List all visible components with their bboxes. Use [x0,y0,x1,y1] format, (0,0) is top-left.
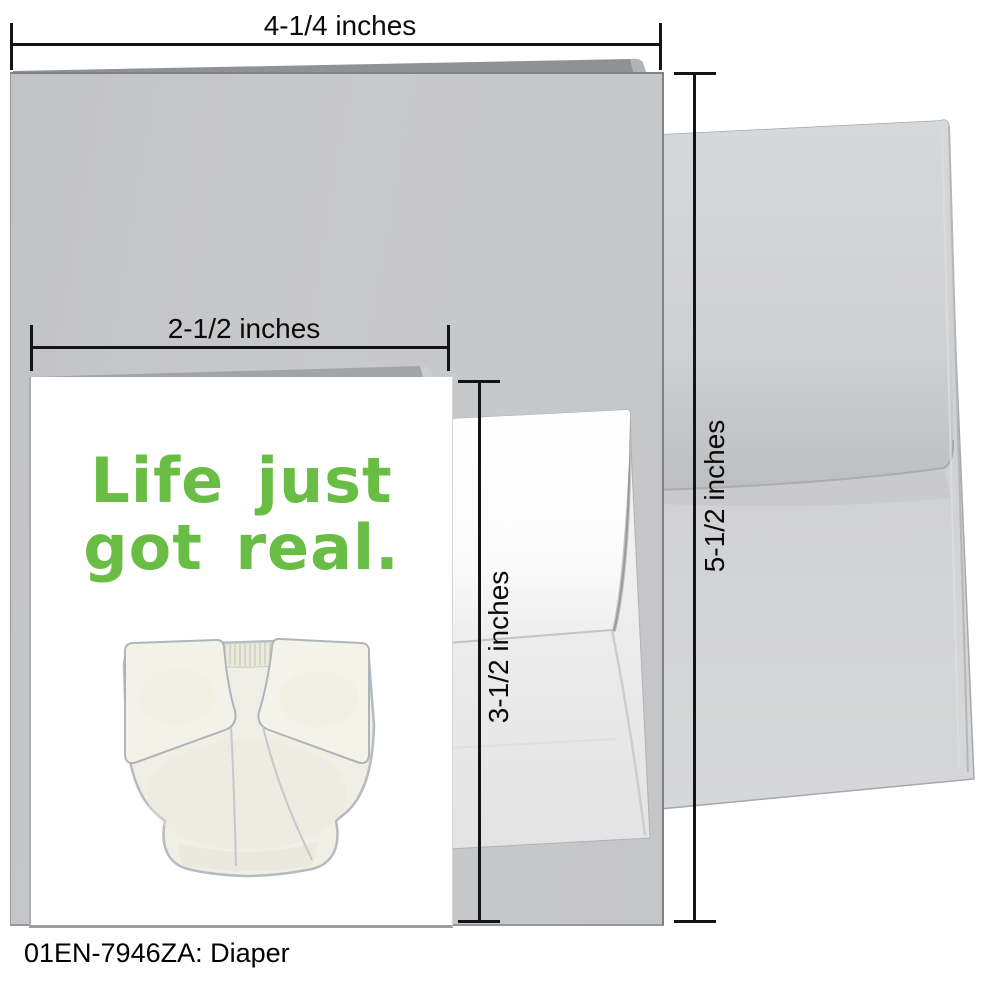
card-message-line1: Life just [31,447,452,514]
dimension-tick-large-width-left [10,23,13,70]
small-card-fold-edge [31,366,434,377]
card-front: Life just got real. [29,377,453,928]
dimension-line-small-height [478,381,481,923]
dimension-tick-small-width-right [447,325,450,371]
dimension-label-small-width: 2-1/2 inches [168,313,321,345]
dimension-tick-large-height-top [674,72,716,75]
diaper-tint-left [139,669,215,725]
dimension-line-large-height [693,74,696,923]
diaper-tint-right [279,671,359,727]
dimension-line-small-width [31,346,450,349]
card-message-line2: got real. [31,514,452,581]
dimension-line-large-width [11,43,661,46]
dimension-label-small-height: 3-1/2 inches [483,571,515,724]
dimension-label-large-width: 4-1/4 inches [264,10,417,42]
small-envelope-flap [448,410,630,643]
product-caption: 01EN-7946ZA: Diaper [24,938,290,969]
diaper-shading [147,740,347,850]
dimension-tick-small-width-left [30,325,33,371]
dimension-tick-small-height-top [458,380,500,383]
dimension-tick-small-height-bottom [458,920,500,923]
dimension-tick-large-height-bottom [674,920,716,923]
product-preview-canvas: Life just got real. [0,0,984,984]
dimension-label-large-height: 5-1/2 inches [699,420,731,573]
diaper-illustration [115,635,379,879]
card-message: Life just got real. [31,447,452,581]
dimension-tick-large-width-right [659,23,662,70]
